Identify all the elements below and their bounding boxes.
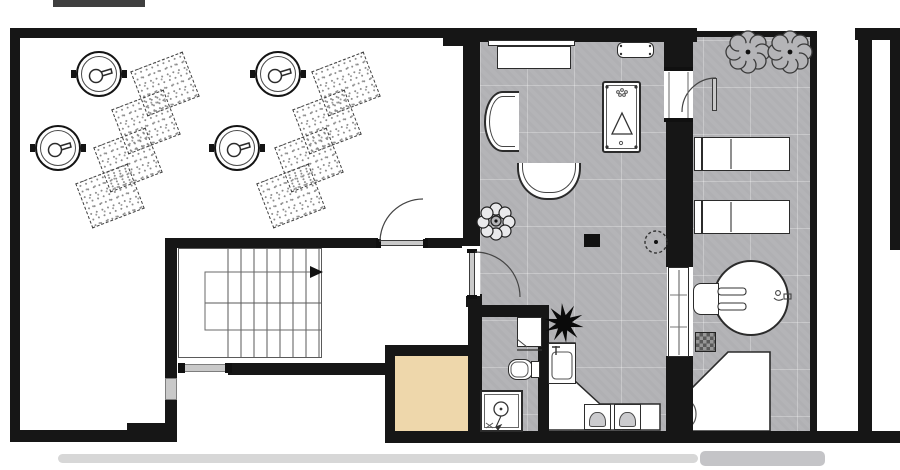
sideboard: [497, 46, 571, 69]
shower-inner: [484, 394, 519, 428]
toilet-tank: [531, 361, 540, 378]
wall-terrace-outer: [858, 28, 872, 438]
chair-2: [614, 404, 641, 430]
washbasin-unit: [548, 343, 576, 384]
sliding-door-panel: [668, 267, 689, 357]
wall-stair-west-b: [165, 400, 177, 432]
wall-stair-south: [228, 363, 388, 375]
stool-checkered: [695, 332, 716, 352]
sofa-west-inner: [489, 96, 515, 147]
door-relax-leaf: [712, 78, 717, 111]
wall-sauna-north: [385, 345, 468, 356]
staircase: [178, 248, 322, 358]
window-south: [184, 364, 226, 372]
under-layer: [0, 0, 900, 470]
window-stair-west: [165, 378, 177, 400]
whirlpool-seat: [693, 283, 719, 315]
lounger-2: [702, 200, 790, 234]
door-hall-stair-leaf: [380, 240, 424, 246]
lounger-1: [702, 137, 790, 171]
lounger-1-side-table: [694, 137, 702, 171]
whirlpool-round: [713, 260, 789, 336]
toilet-bowl: [508, 359, 533, 380]
platform-step: [690, 352, 770, 431]
chair-1: [584, 404, 611, 430]
door-relax-opening: [664, 70, 693, 120]
wall-mid-c: [666, 356, 693, 432]
wall-top-relax-thin: [695, 31, 815, 37]
wall-mid-b: [666, 118, 693, 267]
door-lounge-leaf: [469, 252, 475, 296]
wall-sauna-west: [385, 345, 395, 443]
wall-edge-right: [890, 28, 900, 250]
wall-bottom-main: [385, 431, 900, 443]
wall-bench: [617, 42, 654, 58]
black-side-table: [584, 234, 600, 247]
wall-relax-east-thin: [810, 31, 817, 432]
bath-cabinet: [517, 317, 542, 347]
wall-stair-west-a: [165, 238, 177, 378]
wall-lounge-west: [463, 30, 480, 242]
wall-left-outer: [10, 28, 20, 442]
wall-top-left: [12, 28, 464, 38]
pool-table-felt: [606, 85, 637, 149]
lounger-2-side-table: [694, 200, 702, 234]
floor-plan-canvas: [0, 0, 900, 470]
wall-stair-north-a: [165, 238, 378, 248]
